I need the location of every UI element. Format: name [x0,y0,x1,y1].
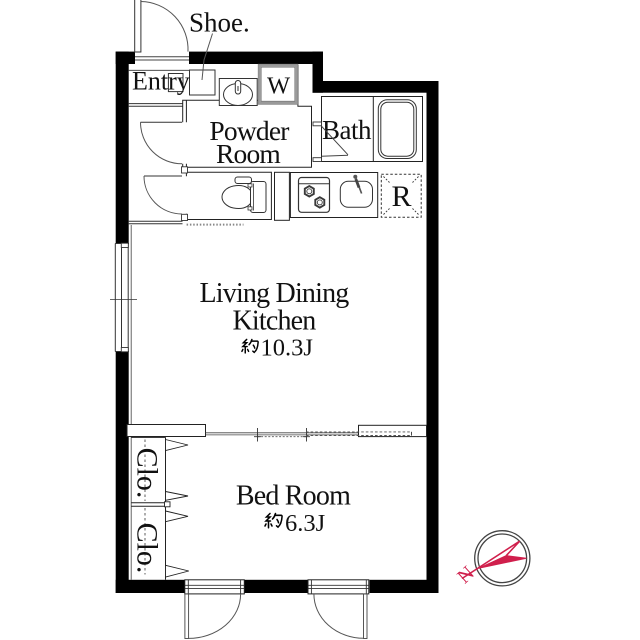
svg-text:Kitchen: Kitchen [232,306,316,337]
svg-text:Bath: Bath [322,115,372,145]
svg-text:Entry: Entry [132,67,190,96]
svg-text:Room: Room [216,138,280,169]
svg-text:6.3J: 6.3J [285,510,326,537]
svg-text:Clo.: Clo. [131,523,164,574]
svg-text:R: R [391,180,411,213]
svg-text:W: W [267,73,291,100]
svg-text:10.3J: 10.3J [261,335,314,362]
svg-text:Living Dining: Living Dining [199,278,349,309]
svg-text:Bed Room: Bed Room [236,481,351,512]
svg-text:Shoe.: Shoe. [189,8,250,38]
svg-text:Clo.: Clo. [131,448,164,499]
